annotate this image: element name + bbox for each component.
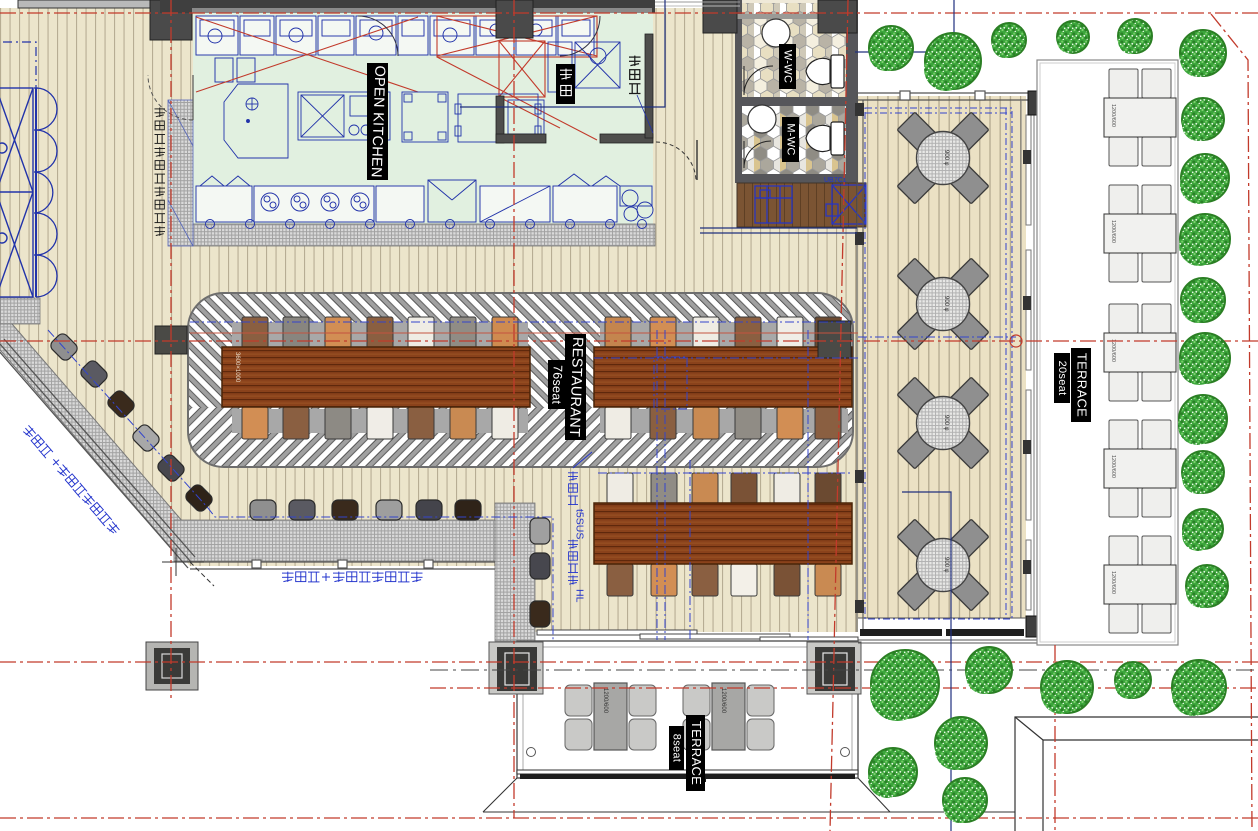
svg-text:900 φ: 900 φ [943, 415, 949, 431]
svg-text:HL: HL [574, 589, 586, 603]
svg-text:900 φ: 900 φ [943, 150, 949, 166]
svg-text:1200/600: 1200/600 [720, 688, 726, 714]
svg-text:20seat: 20seat [1056, 361, 1068, 396]
svg-text:76seat: 76seat [549, 365, 564, 405]
svg-text:UB7C1: UB7C1 [824, 177, 847, 184]
svg-text:1200/600: 1200/600 [1110, 455, 1116, 478]
svg-text:TERRACE: TERRACE [689, 721, 704, 785]
svg-text:t5SUS: t5SUS [574, 509, 586, 539]
svg-text:1200/600: 1200/600 [1110, 339, 1116, 362]
svg-text:1200/600: 1200/600 [602, 688, 608, 714]
svg-text:1200/600: 1200/600 [1110, 104, 1116, 127]
svg-text:3600×1000: 3600×1000 [234, 352, 240, 383]
svg-text:900 φ: 900 φ [943, 557, 949, 573]
svg-text:W-WC: W-WC [782, 50, 794, 83]
svg-text:1200/600: 1200/600 [1110, 220, 1116, 243]
svg-text:900 φ: 900 φ [943, 296, 949, 312]
svg-text:1200/600: 1200/600 [1110, 571, 1116, 594]
svg-text:M-WC: M-WC [785, 123, 797, 155]
svg-text:8seat: 8seat [671, 734, 683, 762]
svg-text:TERRACE: TERRACE [1075, 353, 1090, 417]
